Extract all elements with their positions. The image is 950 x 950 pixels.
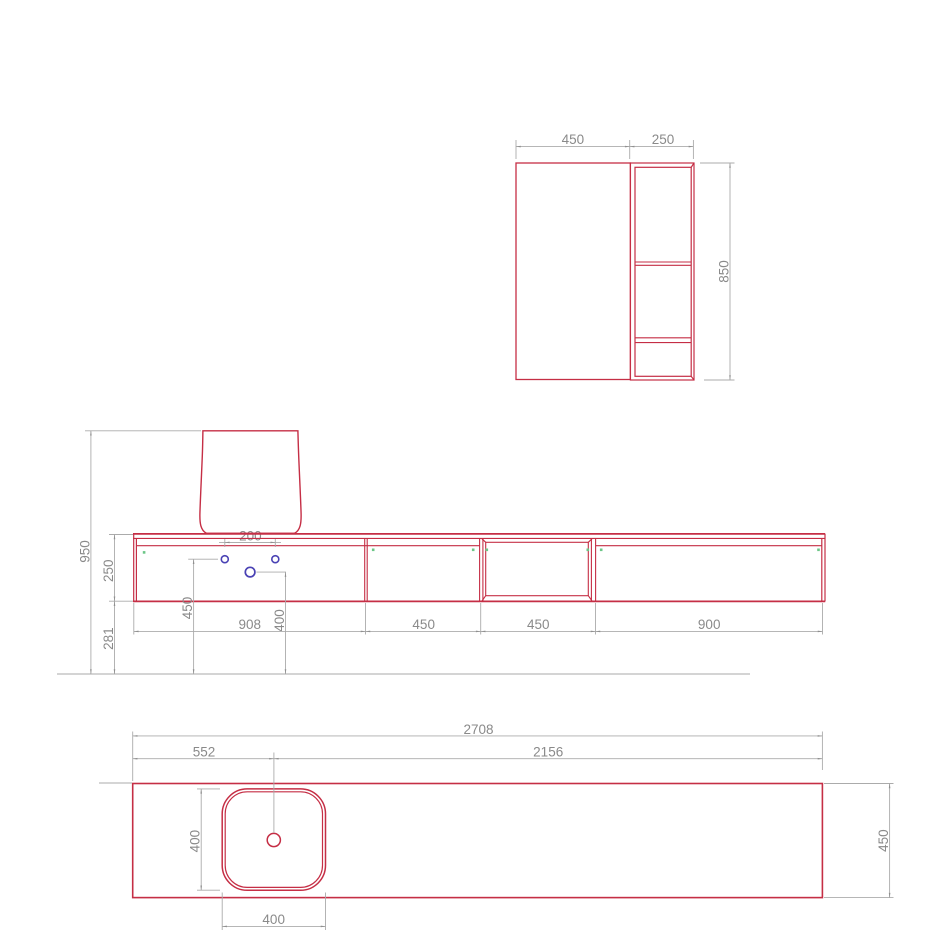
svg-text:850: 850 xyxy=(717,260,732,283)
svg-text:400: 400 xyxy=(272,609,287,632)
svg-text:400: 400 xyxy=(262,912,285,927)
svg-text:450: 450 xyxy=(876,829,891,852)
svg-text:2156: 2156 xyxy=(533,745,563,760)
svg-text:552: 552 xyxy=(193,745,216,760)
svg-text:450: 450 xyxy=(412,617,435,632)
svg-text:400: 400 xyxy=(188,830,203,853)
svg-text:450: 450 xyxy=(562,132,585,147)
svg-text:908: 908 xyxy=(239,617,262,632)
svg-text:450: 450 xyxy=(180,597,195,620)
svg-text:250: 250 xyxy=(652,132,675,147)
svg-text:200: 200 xyxy=(239,529,262,544)
svg-text:250: 250 xyxy=(101,559,116,582)
svg-text:450: 450 xyxy=(527,617,550,632)
svg-text:900: 900 xyxy=(698,617,721,632)
svg-text:950: 950 xyxy=(77,540,92,563)
svg-text:2708: 2708 xyxy=(463,722,493,737)
svg-text:281: 281 xyxy=(101,627,116,650)
